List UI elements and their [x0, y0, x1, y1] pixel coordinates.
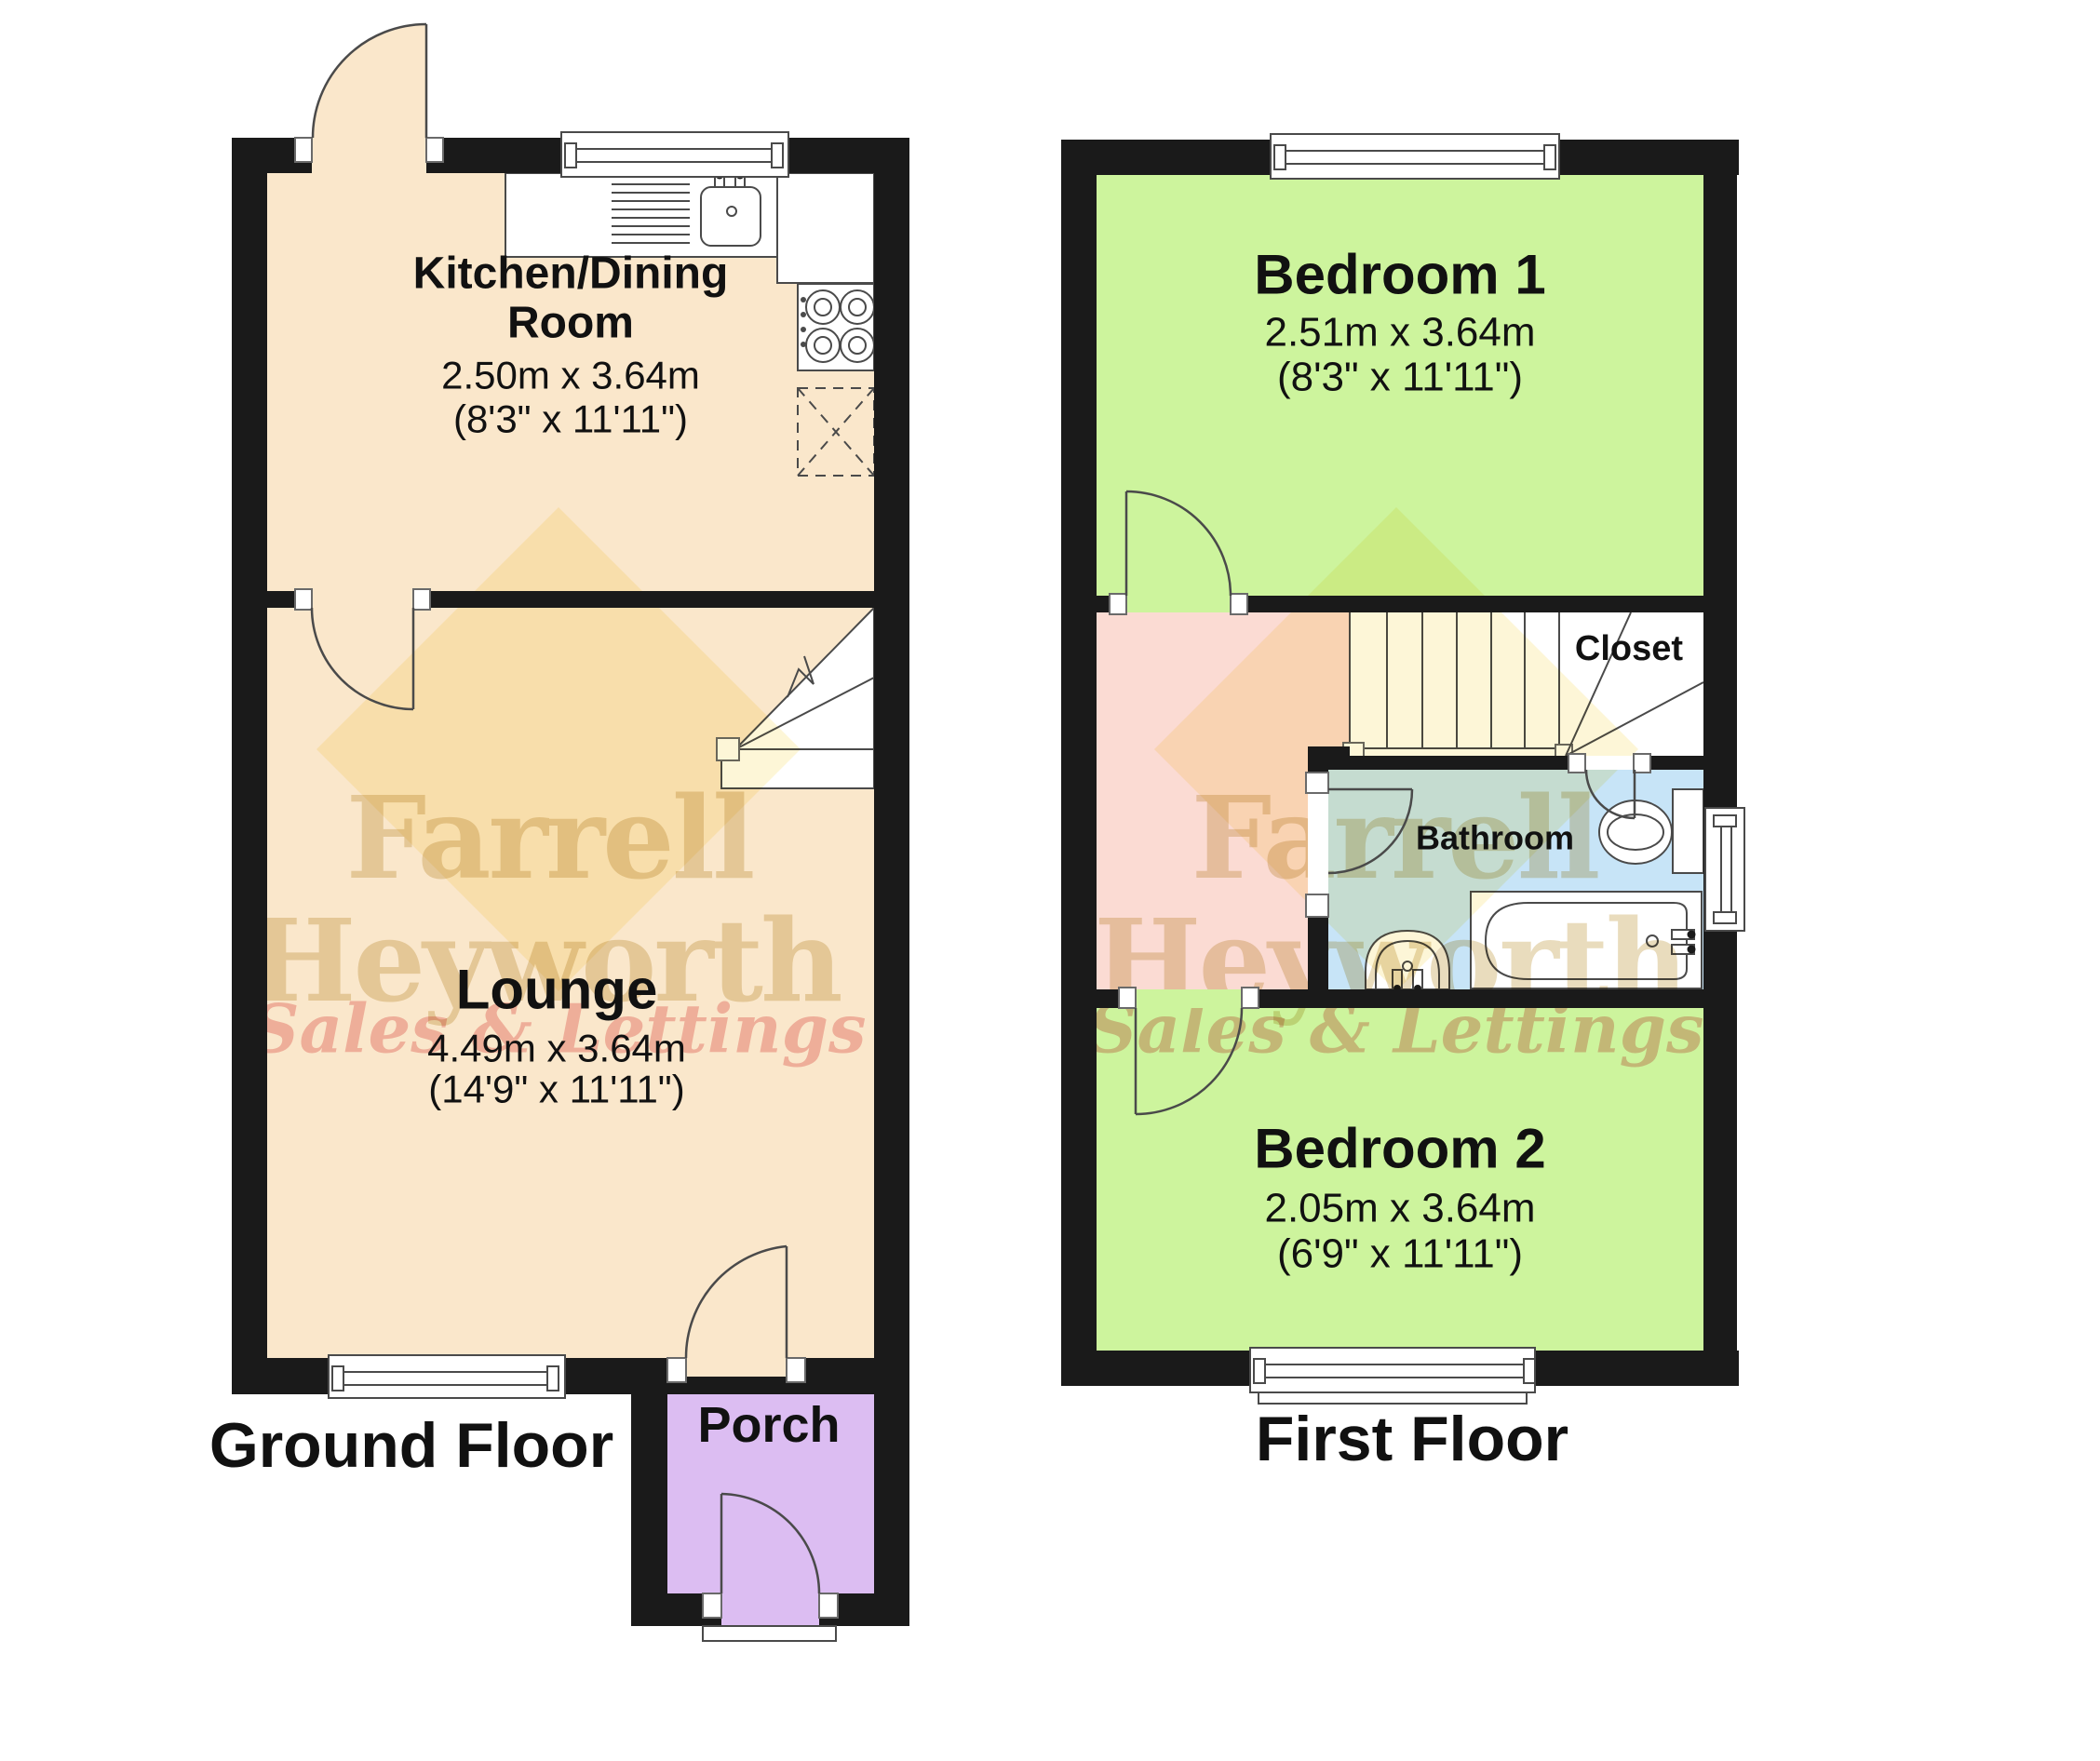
first-floor-title: First Floor	[1256, 1404, 1568, 1474]
kitchen-window-icon	[561, 132, 788, 177]
bedroom2-dims-metric: 2.05m x 3.64m	[1264, 1186, 1535, 1231]
bedroom1-dims-imperial: (8'3" x 11'11")	[1277, 355, 1523, 400]
kitchen-dims-metric: 2.50m x 3.64m	[441, 354, 700, 397]
watermark-line1: Farrell	[346, 771, 754, 905]
bedroom1-window-icon	[1271, 134, 1559, 179]
bathroom-window-icon	[1705, 808, 1744, 931]
lounge-window-icon	[329, 1355, 565, 1398]
porch-label: Porch	[697, 1397, 840, 1453]
kitchen-label-line1: Kitchen/Dining	[413, 249, 729, 299]
front-step	[703, 1626, 836, 1641]
bedroom1-label: Bedroom 1	[1254, 244, 1545, 306]
lounge-label: Lounge	[456, 959, 658, 1021]
back-door	[295, 24, 443, 173]
kitchen-dims-imperial: (8'3" x 11'11")	[453, 397, 688, 441]
bedroom2-dims-imperial: (6'9" x 11'11")	[1277, 1231, 1523, 1277]
lounge-dims-imperial: (14'9" x 11'11")	[428, 1068, 684, 1111]
ground-floor-plan: Farrell Heyworth Sales & Lettings	[209, 24, 909, 1641]
closet-label: Closet	[1575, 629, 1683, 668]
bedroom1-dims-metric: 2.51m x 3.64m	[1264, 310, 1535, 356]
bedroom2-window-icon	[1250, 1348, 1535, 1404]
bedroom2-label: Bedroom 2	[1254, 1118, 1545, 1180]
hob-icon	[798, 284, 874, 370]
ground-floor-title: Ground Floor	[209, 1410, 613, 1481]
floorplan-page: Farrell Heyworth Sales & Lettings	[0, 0, 2100, 1761]
bathroom-label: Bathroom	[1416, 819, 1574, 857]
floorplan-svg: Farrell Heyworth Sales & Lettings	[0, 0, 2100, 1761]
kitchen-label-line2: Room	[507, 299, 634, 348]
first-floor-plan: Farrell Heyworth Sales & Lettings	[1061, 134, 1744, 1474]
lounge-dims-metric: 4.49m x 3.64m	[427, 1027, 686, 1070]
